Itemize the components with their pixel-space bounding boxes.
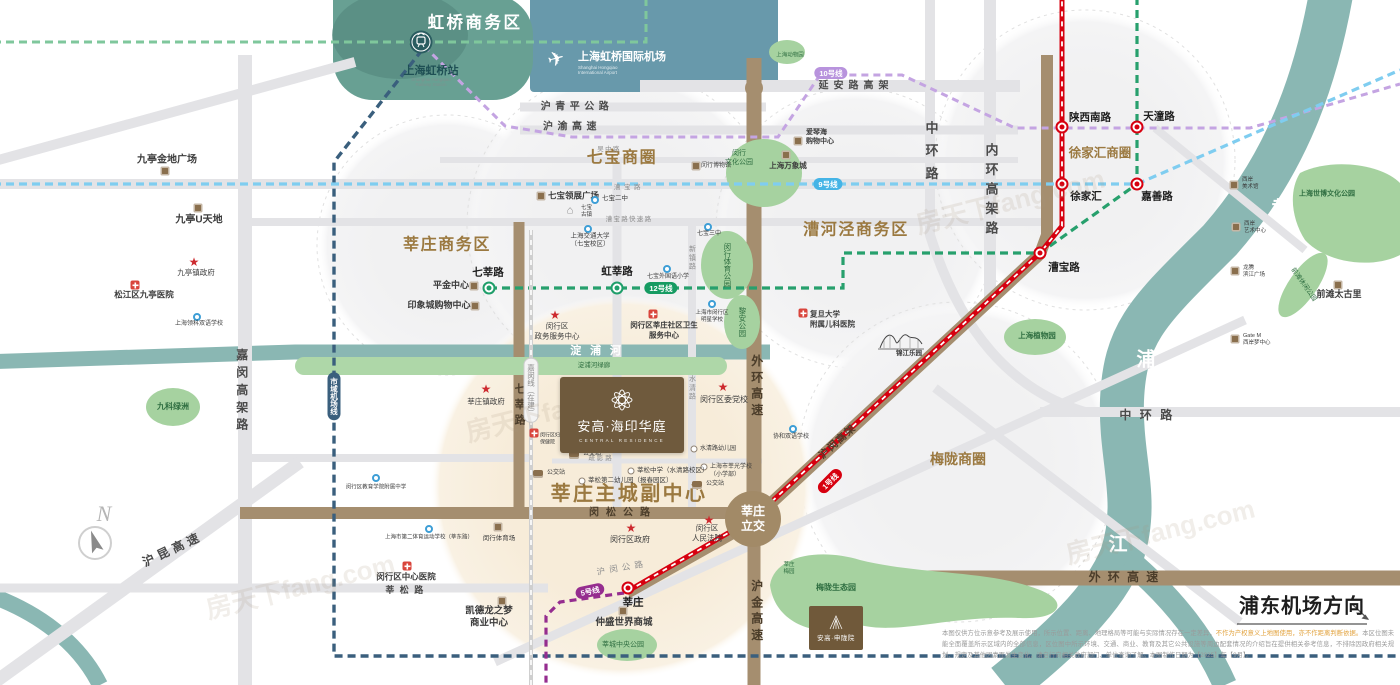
poi-jiuting-gov: 九亭镇政府 xyxy=(177,268,215,278)
park-minhang-sports: 闵行体育公园 xyxy=(722,243,732,288)
poi-zhongsheng-mall: 仲盛世界商城 xyxy=(595,617,652,629)
cross-icon xyxy=(131,281,140,290)
park-jiuke-oasis: 九科绿洲 xyxy=(157,402,189,412)
poi-xiehe-school: 协和双语学校 xyxy=(773,434,809,442)
road-huqingping: 沪青平公路 xyxy=(541,101,614,114)
poi-fudan-children-hospital: 复旦大学 附属儿科医院 xyxy=(810,309,855,329)
hongqiao-station-label: 上海虹桥站 xyxy=(404,62,459,78)
property-card-haiyin: 安高·海印华庭 CENTRAL RESIDENCE xyxy=(560,377,684,453)
shop-icon xyxy=(161,167,170,176)
school-icon xyxy=(591,196,599,204)
poi-jinjiang-park: 锦江乐园 xyxy=(896,350,922,358)
cross-icon xyxy=(649,310,658,319)
property-name: 安高·海印华庭 xyxy=(577,416,666,435)
map-stage: N 七宝商圈莘庄商务区漕河泾商务区徐家汇商圈梅陇商圈莘庄主城副中心沪青平公路沪渝… xyxy=(0,0,1400,685)
flower-logo-icon xyxy=(607,387,637,413)
park-xinzhuang-plum: 莘庄 梅园 xyxy=(783,562,794,576)
shop-icon xyxy=(494,523,503,532)
poi-xinsong-kindergarten: 莘松第二幼儿园（报春园区） xyxy=(588,477,673,485)
badge-line1: 1号线 xyxy=(815,466,844,495)
park-qiantan-leisure: 前滩休闲公园 xyxy=(1288,267,1317,304)
park-botanical: 上海植物园 xyxy=(1018,331,1056,341)
shop-icon xyxy=(470,282,479,291)
park-expo-culture: 上海世博文化公园 xyxy=(1299,189,1355,198)
river-dianpu: 淀浦河 xyxy=(570,344,629,358)
district-xinzhuang-biz: 莘庄商务区 xyxy=(403,236,491,257)
poi-jiuting-gemdale: 九亭金地广场 xyxy=(137,154,197,167)
poi-minhang-gov: 闵行区政府 xyxy=(610,535,650,545)
river-huangpu-huang: 黄 xyxy=(1271,198,1290,223)
station-caobaolu-icon xyxy=(1034,247,1047,260)
hongqiao-station-label-en: Shanghai Hongqiao Railway Station xyxy=(411,77,451,87)
badge-line10: 10号线 xyxy=(814,67,847,79)
school-icon xyxy=(193,313,201,321)
station-hongxinlu-icon xyxy=(611,282,624,295)
star-icon: ★ xyxy=(189,256,200,268)
poi-westbund-museum: 西岸 美术馆 xyxy=(1242,177,1259,191)
poi-pingjin-center: 平金中心 xyxy=(433,280,469,292)
station-tiantonglu-icon xyxy=(1131,121,1144,134)
poi-qibao-foreign: 七宝外国语小学 xyxy=(647,274,689,282)
map-disclaimer: 本图仅供方位示意参考及展示使用，所示位置、距离、地理格局等可能与实际情况存在一定… xyxy=(942,628,1394,661)
watermark-3: 房天下fang.com xyxy=(202,544,399,627)
badge-line9: 9号线 xyxy=(813,178,842,190)
poi-westbund-art-center: 西岸 艺术中心 xyxy=(1244,221,1266,235)
station-shanxinanlu-icon xyxy=(1056,121,1069,134)
poi-bus-stop-3: 公交站 xyxy=(706,481,724,489)
poi-jiaotong-univ: 上海交通大学 （七宝校区） xyxy=(571,233,610,250)
road-humin-elevated: 沪闵高架 xyxy=(817,422,860,462)
poi-qibao-no2: 七宝二中 xyxy=(602,195,628,203)
poi-qibao-oldtown: 七宝 古镇 xyxy=(581,205,592,219)
property2-name: 安高·申陇院 xyxy=(817,632,855,642)
park-lian: 黎安公园 xyxy=(737,307,747,337)
poi-yinxiangcheng: 印象城购物中心 xyxy=(407,300,470,312)
station-xinzhuang-label: 莘庄 xyxy=(623,595,644,610)
shop-icon xyxy=(471,302,480,311)
star-icon: ★ xyxy=(626,522,637,534)
park-zoo: 上海动物园 xyxy=(776,52,804,59)
pudong-airport-direction: 浦东机场方向 xyxy=(1237,590,1367,625)
school-icon xyxy=(372,474,380,482)
shop-icon xyxy=(1231,267,1240,276)
shop-icon xyxy=(1230,181,1239,190)
poi-mixc: 上海万象城 xyxy=(769,161,807,171)
district-hongqiao-label: 虹桥商务区 xyxy=(428,9,523,33)
badge-line12: 12号线 xyxy=(644,282,677,294)
poi-bus-stop-2: 公交站 xyxy=(547,470,565,478)
poi-qiantan-taikooli: 前滩太古里 xyxy=(1316,289,1361,301)
poi-capitaland: 凯德龙之梦 商业中心 xyxy=(465,606,513,631)
badge-airport-link-line: 市域机场线 xyxy=(328,372,341,420)
district-caohejing: 漕河泾商务区 xyxy=(803,221,909,242)
poi-party-school: 闵行区委党校 xyxy=(700,395,748,405)
bus-icon xyxy=(533,470,543,478)
poi-minhang-museum: 闵行博物馆 xyxy=(701,163,731,171)
road-caobao-exp: 漕宝路快速路 xyxy=(606,216,653,224)
district-xujiahui: 徐家汇商圈 xyxy=(1069,145,1132,161)
shop-icon xyxy=(1334,281,1343,290)
road-xinzhen: 新镇路 xyxy=(687,245,696,271)
road-huyu: 沪渝高速 xyxy=(543,121,601,134)
road-shuiqing: 水清路 xyxy=(687,375,696,401)
poi-jiuting-hospital: 松江区九亭医院 xyxy=(114,289,174,300)
road-caobao: 漕宝路 xyxy=(614,184,644,192)
watermark-2: 房天下fang.com xyxy=(1062,489,1259,572)
road-yanan-elevated: 延安路高架 xyxy=(819,80,894,93)
xinzhuang-interchange: 莘庄 立交 xyxy=(725,491,781,547)
poi-jiuting-u: 九亭U天地 xyxy=(175,214,222,227)
park-meilong-eco: 梅陇生态园 xyxy=(816,583,856,593)
hongqiao-airport-label-en: Shanghai Hongqiao International Airport xyxy=(578,65,618,75)
road-zhonghuan-v: 中环路 xyxy=(922,121,939,189)
poi-shuiqing-kindergarten: 水清路幼儿园 xyxy=(700,446,736,454)
poi-minhang-court: 闵行区 人民法院 xyxy=(692,523,722,543)
watermark-1: 房天下fang.com xyxy=(912,159,1109,242)
poi-lingke-school: 上海领科双语学校 xyxy=(175,321,223,329)
station-jiashanlu-label: 嘉善路 xyxy=(1141,189,1173,204)
poi-gate-m: Gate M 西岸梦中心 xyxy=(1243,333,1271,347)
road-minsong: 闵松公路 xyxy=(589,507,657,520)
poi-gov-service-center: 闵行区 政务服务中心 xyxy=(535,321,580,341)
station-qixinlu-label: 七莘路 xyxy=(472,265,504,280)
station-shanxinanlu-label: 陕西南路 xyxy=(1069,110,1111,125)
poi-mingxing-school: 上海市闵行区 明星学校 xyxy=(695,310,728,324)
shop-icon xyxy=(194,204,203,213)
hongqiao-airport-label: 上海虹桥国际机场 xyxy=(578,48,666,64)
disclaimer-part1: 本图仅供方位示意参考及展示使用，所示位置、距离、地理格局等可能与实际情况存在一定… xyxy=(942,630,1216,637)
poi-xinguang-school: 上海市莘光学校 （小学部） xyxy=(710,464,752,480)
road-hujin-v: 沪金高速 xyxy=(748,580,764,645)
shop-icon xyxy=(782,151,791,160)
disclaimer-highlight: 不作为产权意义上地图使用，亦不作距离判断依据。 xyxy=(1216,630,1362,637)
shop-icon xyxy=(1232,223,1241,232)
road-zhonghuan-h: 中环路 xyxy=(1119,408,1180,424)
school-icon xyxy=(704,223,712,231)
shop-icon xyxy=(537,192,546,201)
shop-icon xyxy=(1231,335,1240,344)
badge-line5: 5号线 xyxy=(574,582,605,600)
pin-icon xyxy=(628,468,635,475)
poi-binjiang-plaza: 龙腾 滨江广场 xyxy=(1243,265,1265,279)
star-icon: ★ xyxy=(481,383,492,395)
shop-icon xyxy=(794,137,803,146)
station-tiantonglu-label: 天潼路 xyxy=(1143,109,1175,124)
school-icon xyxy=(708,300,716,308)
road-humin-hwy: 沪闵公路 xyxy=(596,558,648,578)
star-icon: ★ xyxy=(718,381,729,393)
star-icon: ★ xyxy=(550,309,561,321)
park-xincheng-central: 莘城中央公园 xyxy=(602,640,644,649)
school-icon xyxy=(789,425,797,433)
road-xinsong: 莘松路 xyxy=(385,585,428,597)
park-dianpu-greenway: 淀浦河绿廊 xyxy=(578,362,611,370)
tower-logo-icon xyxy=(829,615,843,630)
district-meilong: 梅陇商圈 xyxy=(930,450,986,468)
road-waihuan-h: 外环高速 xyxy=(1089,570,1166,586)
bus-icon xyxy=(692,481,702,489)
poi-community-health: 闵行区莘庄社区卫生 服务中心 xyxy=(630,320,698,340)
poi-sports-school: 上海市第二体育运动学校（莘东路） xyxy=(385,534,473,541)
school-icon xyxy=(425,525,433,533)
property-name-en: CENTRAL RESIDENCE xyxy=(579,438,665,443)
shop-icon xyxy=(692,162,701,171)
station-caobaolu-label: 漕宝路 xyxy=(1048,260,1080,275)
station-xinzhuang-icon xyxy=(622,582,635,595)
poi-aegean-mall: 爱琴海 购物中心 xyxy=(806,128,834,146)
station-qixinlu-icon xyxy=(483,282,496,295)
pin-icon xyxy=(691,446,698,453)
station-hongxinlu-label: 虹莘路 xyxy=(601,264,633,279)
cross-icon xyxy=(799,309,808,318)
road-jiamin-elevated: 嘉闵高架路 xyxy=(233,349,249,436)
poi-xinsong-middle: 莘松中学（水清路校区） xyxy=(637,467,709,475)
property-card-shenlong: 安高·申陇院 xyxy=(809,606,863,650)
cross-icon xyxy=(403,562,412,571)
road-waihuan-v: 外环高速 xyxy=(748,355,764,420)
road-hukun: 沪昆高速 xyxy=(140,529,205,571)
shop-icon xyxy=(498,597,507,606)
pav-icon: ⌂ xyxy=(567,206,574,217)
road-wuzhong: 吴中路 xyxy=(597,146,620,154)
river-huangpu-pu: 浦 xyxy=(1136,349,1155,374)
school-icon xyxy=(663,265,671,273)
poi-edu-college-school: 闵行区教育学院附属中学 xyxy=(346,484,407,491)
poi-qibao-no3: 七宝三中 xyxy=(697,231,721,239)
pin-icon xyxy=(579,478,586,485)
labels-layer: 七宝商圈莘庄商务区漕河泾商务区徐家汇商圈梅陇商圈莘庄主城副中心沪青平公路沪渝高速… xyxy=(0,0,1400,685)
poi-minhang-stadium: 闵行体育场 xyxy=(483,535,516,543)
